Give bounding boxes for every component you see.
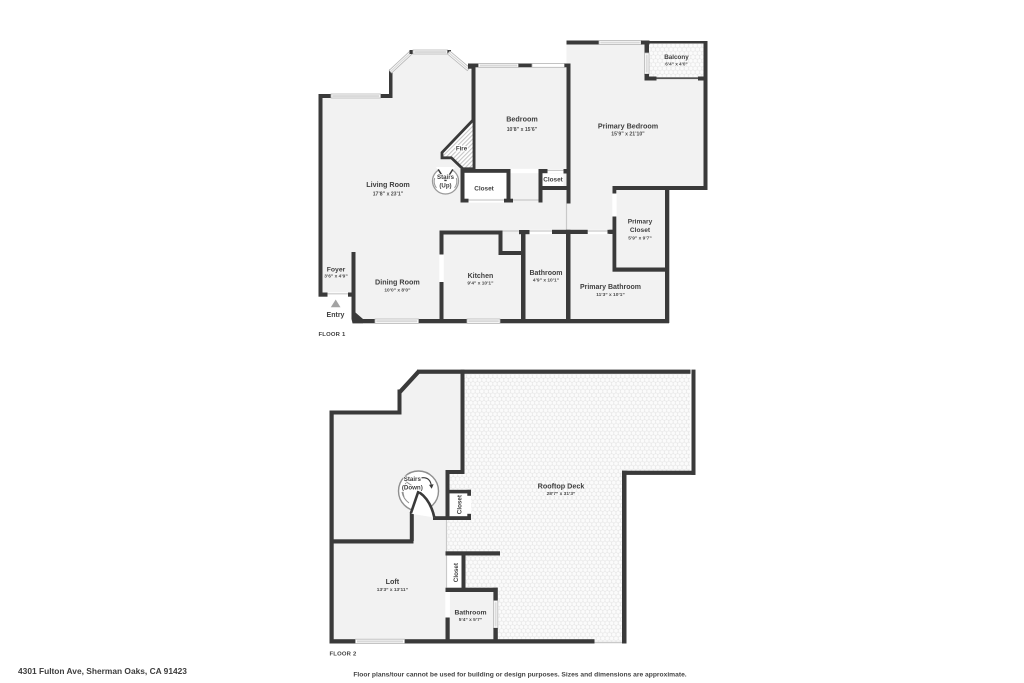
svg-text:Bathroom: Bathroom xyxy=(529,270,562,277)
svg-text:Primary: Primary xyxy=(628,219,653,226)
svg-text:10’8” x 15’6”: 10’8” x 15’6” xyxy=(507,127,538,133)
svg-text:15’9” x 21’10”: 15’9” x 21’10” xyxy=(611,131,645,137)
svg-text:Closet: Closet xyxy=(630,227,651,234)
svg-text:4301 Fulton Ave, Sherman Oaks,: 4301 Fulton Ave, Sherman Oaks, CA 91423 xyxy=(18,666,187,676)
svg-text:28’7” x 31’3”: 28’7” x 31’3” xyxy=(547,491,576,497)
svg-text:Balcony: Balcony xyxy=(664,54,689,61)
svg-text:11’3” x 10’1”: 11’3” x 10’1” xyxy=(596,292,625,298)
svg-text:FLOOR 1: FLOOR 1 xyxy=(319,332,346,338)
svg-text:Kitchen: Kitchen xyxy=(468,273,494,280)
svg-text:17’8” x 23’1”: 17’8” x 23’1” xyxy=(373,191,404,197)
svg-text:Primary Bedroom: Primary Bedroom xyxy=(598,121,658,130)
svg-text:Bedroom: Bedroom xyxy=(506,115,538,124)
svg-text:10’0” x 8’0”: 10’0” x 8’0” xyxy=(384,288,411,294)
svg-text:(Up): (Up) xyxy=(439,183,451,190)
svg-text:6’4” x 4’0”: 6’4” x 4’0” xyxy=(665,62,687,67)
svg-text:Entry: Entry xyxy=(327,312,345,319)
svg-text:5’9” x 9’7”: 5’9” x 9’7” xyxy=(628,235,652,241)
svg-text:Rooftop Deck: Rooftop Deck xyxy=(538,481,585,490)
svg-text:Floor plans/tour cannot be use: Floor plans/tour cannot be used for buil… xyxy=(353,671,686,678)
svg-text:Dining Room: Dining Room xyxy=(375,278,420,287)
svg-text:Primary Bathroom: Primary Bathroom xyxy=(580,284,641,291)
svg-text:9’4” x 10’1”: 9’4” x 10’1” xyxy=(467,281,494,287)
svg-text:Closet: Closet xyxy=(456,494,463,514)
svg-text:(Down): (Down) xyxy=(402,485,423,492)
svg-text:Closet: Closet xyxy=(543,177,563,184)
svg-text:Closet: Closet xyxy=(453,562,460,582)
svg-text:Closet: Closet xyxy=(474,185,494,192)
svg-text:Bathroom: Bathroom xyxy=(454,610,486,617)
svg-text:3’6” x 4’9”: 3’6” x 4’9” xyxy=(324,273,348,279)
svg-text:Living Room: Living Room xyxy=(366,180,410,189)
svg-text:Stairs: Stairs xyxy=(404,476,422,483)
svg-text:Stairs: Stairs xyxy=(437,174,455,181)
svg-text:Fire: Fire xyxy=(456,146,468,153)
svg-text:Loft: Loft xyxy=(386,577,400,586)
svg-text:Foyer: Foyer xyxy=(327,267,346,274)
svg-text:13’3” x 13’11”: 13’3” x 13’11” xyxy=(377,587,409,593)
svg-text:4’9” x 10’1”: 4’9” x 10’1” xyxy=(533,278,560,284)
svg-text:FLOOR 2: FLOOR 2 xyxy=(330,652,357,658)
svg-text:5’4” x 5’7”: 5’4” x 5’7” xyxy=(459,617,483,623)
